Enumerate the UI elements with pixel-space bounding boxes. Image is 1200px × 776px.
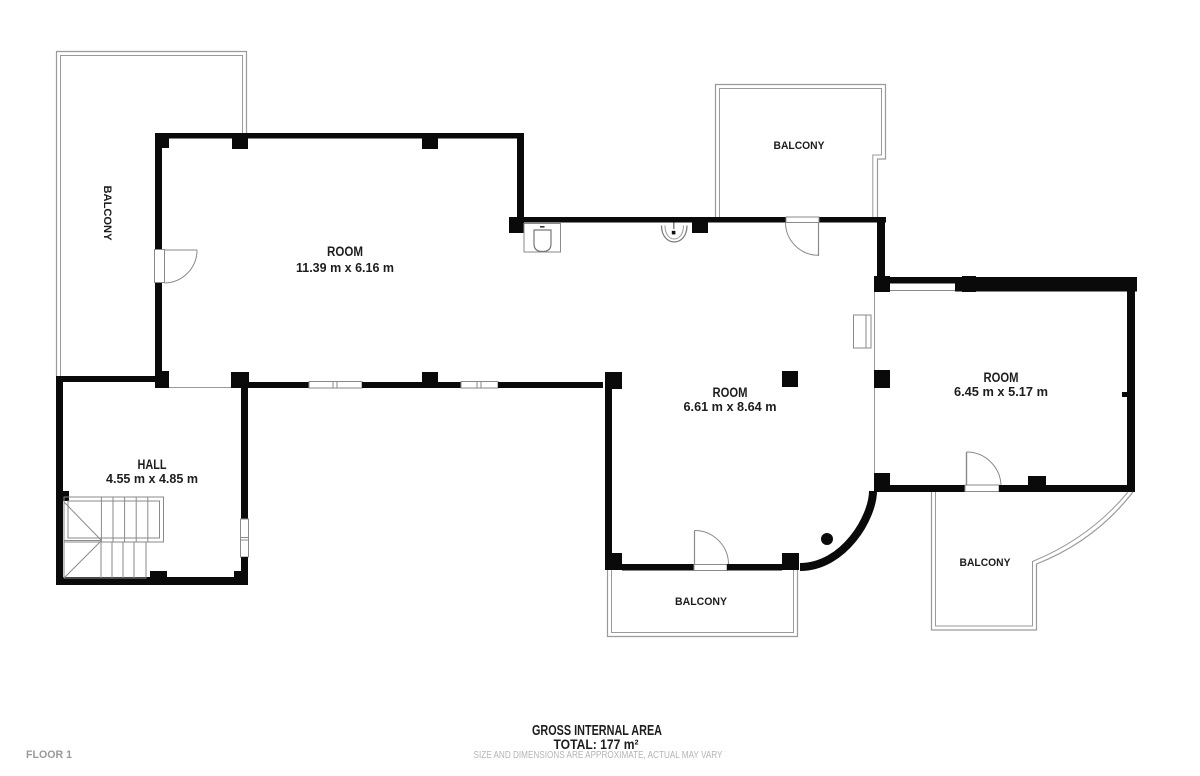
svg-text:ROOM: ROOM [327, 244, 363, 259]
svg-text:BALCONY: BALCONY [675, 596, 728, 608]
svg-text:6.61 m x 8.64 m: 6.61 m x 8.64 m [684, 399, 777, 414]
svg-text:ROOM: ROOM [984, 370, 1019, 385]
svg-text:BALCONY: BALCONY [774, 140, 826, 152]
svg-text:FLOOR 1: FLOOR 1 [26, 749, 72, 761]
svg-text:ROOM: ROOM [713, 385, 748, 400]
svg-text:BALCONY: BALCONY [101, 186, 113, 242]
svg-text:SIZE AND DIMENSIONS ARE APPROX: SIZE AND DIMENSIONS ARE APPROXIMATE, ACT… [474, 750, 723, 761]
svg-text:6.45 m x 5.17 m: 6.45 m x 5.17 m [954, 384, 1048, 399]
svg-text:4.55 m x 4.85 m: 4.55 m x 4.85 m [106, 471, 198, 486]
svg-text:HALL: HALL [138, 457, 167, 472]
svg-text:BALCONY: BALCONY [960, 557, 1012, 569]
svg-text:11.39 m x 6.16 m: 11.39 m x 6.16 m [296, 260, 394, 275]
